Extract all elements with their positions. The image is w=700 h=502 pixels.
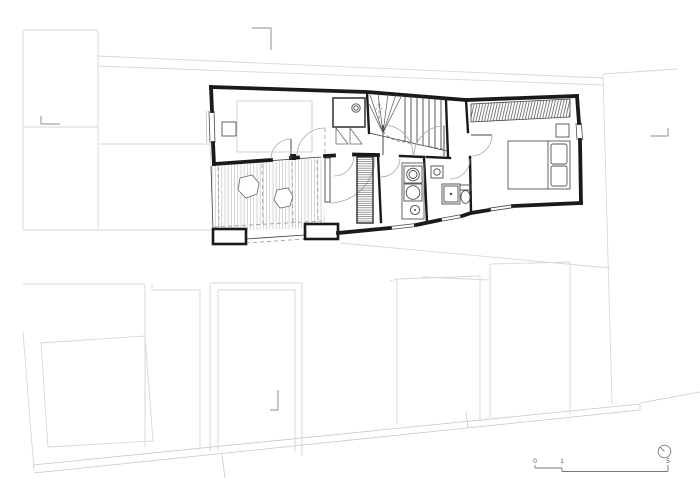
section-corner-mark-top bbox=[252, 28, 271, 50]
east-wall bbox=[577, 96, 581, 203]
wardrobe-cabinet-hatch bbox=[357, 157, 373, 223]
parcel-line-east bbox=[603, 74, 612, 404]
nightstand bbox=[556, 124, 569, 137]
appliance-2-drum bbox=[406, 186, 420, 200]
appliance-2 bbox=[404, 184, 422, 201]
north-arrow-icon bbox=[658, 445, 671, 458]
washbasin bbox=[431, 166, 443, 178]
floor-plan-page: 0 1 5 bbox=[0, 0, 700, 502]
hall-door-swing bbox=[334, 156, 354, 176]
section-corner-mark-right bbox=[650, 128, 668, 136]
section-corner-mark-left bbox=[41, 116, 60, 124]
pillow-1 bbox=[551, 144, 567, 164]
scale-bar: 0 1 5 bbox=[533, 458, 670, 472]
utility-door-swing bbox=[381, 158, 400, 177]
bifold-door-closet bbox=[336, 128, 362, 144]
bath-door-swing bbox=[450, 159, 470, 179]
floor-plan-drawing: 0 1 5 bbox=[0, 0, 700, 502]
terrace-pier-east bbox=[305, 224, 338, 239]
boiler-icon-inner bbox=[354, 106, 358, 110]
toilet bbox=[460, 185, 471, 203]
wardrobe-hatch bbox=[471, 99, 570, 122]
staircase bbox=[336, 94, 447, 152]
terrace-south-dashed bbox=[246, 239, 305, 243]
terrace-decking-hatch bbox=[211, 158, 325, 231]
winder-treads bbox=[369, 94, 402, 134]
terrace-pier-west bbox=[213, 229, 246, 244]
utility-room bbox=[402, 163, 424, 219]
site-plan-layer bbox=[23, 28, 700, 478]
west-wall bbox=[211, 87, 214, 164]
window-west bbox=[206, 111, 215, 143]
rug-outline bbox=[237, 101, 312, 152]
terrace-door-swing-1 bbox=[271, 139, 291, 159]
open-door-leaf bbox=[325, 158, 330, 202]
street-line-upper bbox=[97, 56, 603, 78]
street-line-lower bbox=[97, 66, 603, 85]
counter bbox=[402, 163, 424, 219]
bedroom-door-swing bbox=[471, 135, 492, 156]
street-edge-south bbox=[33, 392, 700, 478]
street-line-right bbox=[603, 69, 678, 74]
parcel-south-west bbox=[23, 332, 153, 470]
hall bbox=[357, 157, 373, 223]
boiler-icon bbox=[352, 104, 360, 112]
pillow-2 bbox=[551, 166, 567, 186]
window-south-bedroom bbox=[489, 205, 513, 212]
rear-parcels bbox=[23, 243, 610, 456]
boiler-closet bbox=[333, 98, 365, 127]
terrace bbox=[211, 157, 338, 244]
north-wall bbox=[211, 87, 577, 100]
section-corner-mark-bottom bbox=[270, 390, 278, 410]
scale-label-0: 0 bbox=[533, 458, 537, 465]
scale-label-1: 1 bbox=[560, 458, 564, 465]
living-room bbox=[222, 101, 312, 152]
bedroom bbox=[471, 99, 570, 189]
window-south-utility bbox=[390, 224, 416, 230]
bed bbox=[508, 141, 570, 189]
radiator bbox=[222, 122, 236, 136]
scale-label-5: 5 bbox=[666, 458, 670, 465]
window-east-bedroom bbox=[576, 123, 583, 140]
window-south-bath bbox=[440, 215, 462, 222]
terrace-south-edge bbox=[246, 235, 305, 239]
